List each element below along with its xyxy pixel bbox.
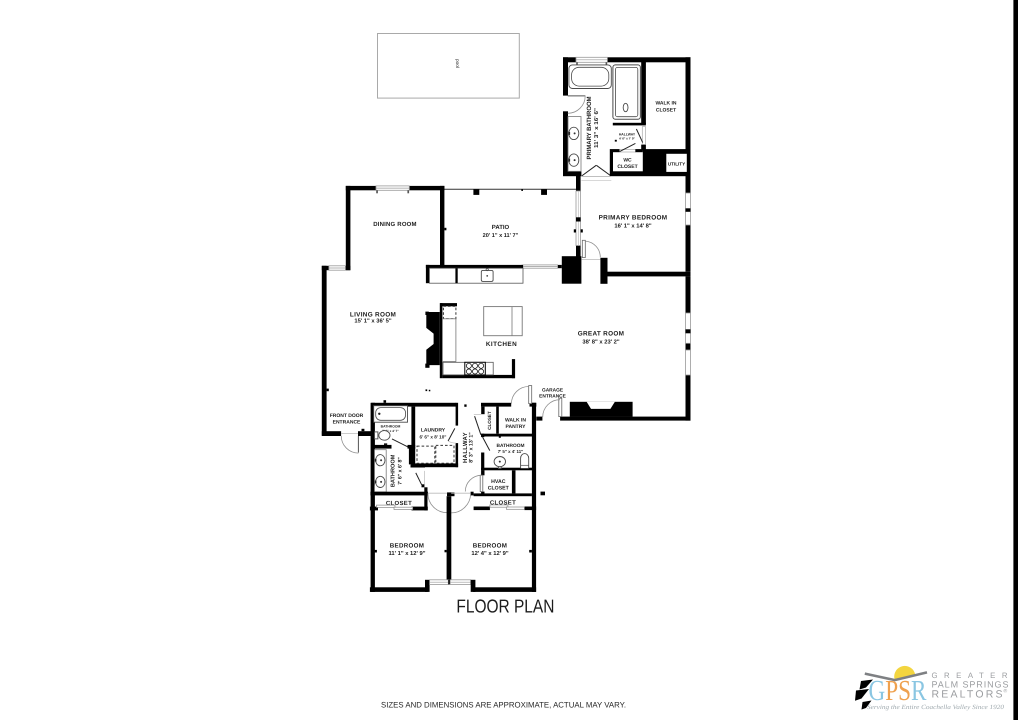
svg-text:UTILITY: UTILITY (668, 161, 685, 166)
svg-text:8' 3" x 13' 1": 8' 3" x 13' 1" (468, 432, 474, 463)
svg-text:GARAGE: GARAGE (542, 387, 564, 393)
svg-text:FRONT DOOR: FRONT DOOR (330, 413, 364, 419)
svg-text:12' 4" x 12' 9": 12' 4" x 12' 9" (471, 550, 509, 557)
svg-text:PANTRY: PANTRY (506, 424, 527, 430)
svg-text:pool: pool (454, 59, 460, 68)
svg-text:LAUNDRY: LAUNDRY (421, 428, 446, 434)
svg-text:CLOSET: CLOSET (656, 107, 676, 113)
svg-text:®: ® (1004, 689, 1008, 695)
svg-text:CLOSET: CLOSET (487, 411, 492, 430)
svg-text:4' 6" x 7' 9": 4' 6" x 7' 9" (619, 137, 636, 141)
svg-text:6' 6" x 8' 10": 6' 6" x 8' 10" (420, 434, 447, 439)
svg-text:PRIMARY BEDROOM: PRIMARY BEDROOM (599, 215, 668, 222)
svg-text:LIVING ROOM: LIVING ROOM (350, 311, 396, 318)
svg-text:KITCHEN: KITCHEN (486, 341, 517, 348)
svg-text:ENTRANCE: ENTRANCE (539, 394, 566, 400)
svg-text:REALTORS: REALTORS (932, 689, 1003, 701)
svg-text:11' 3" x 16' 6": 11' 3" x 16' 6" (594, 108, 600, 148)
svg-text:DINING ROOM: DINING ROOM (373, 221, 417, 228)
svg-text:BEDROOM: BEDROOM (473, 543, 507, 550)
svg-text:BATHROOM: BATHROOM (497, 443, 525, 449)
svg-text:BATHROOM: BATHROOM (391, 454, 397, 487)
svg-text:HVAC: HVAC (491, 479, 506, 485)
svg-text:11' 1" x 12' 9": 11' 1" x 12' 9" (389, 550, 426, 557)
svg-text:WALK IN: WALK IN (655, 101, 676, 107)
svg-text:ENTRANCE: ENTRANCE (333, 419, 361, 425)
svg-text:GREAT ROOM: GREAT ROOM (578, 331, 625, 338)
svg-text:WC: WC (623, 158, 632, 164)
svg-text:CLOSET: CLOSET (617, 164, 637, 170)
svg-text:38' 8" x 23' 2": 38' 8" x 23' 2" (582, 339, 620, 346)
svg-text:7' 5" x 4' 11": 7' 5" x 4' 11" (498, 449, 524, 454)
svg-text:20' 1" x 11' 7": 20' 1" x 11' 7" (483, 233, 519, 239)
svg-text:PATIO: PATIO (492, 224, 510, 231)
svg-text:FLOOR PLAN: FLOOR PLAN (456, 596, 554, 617)
svg-text:Serving the Entire Coachella V: Serving the Entire Coachella Valley Sinc… (867, 704, 1005, 711)
svg-text:CLOSET: CLOSET (488, 486, 510, 492)
svg-text:BEDROOM: BEDROOM (390, 543, 424, 550)
svg-text:7' 6" x 6' 8": 7' 6" x 6' 8" (398, 457, 404, 485)
svg-text:15' 1" x 36' 5": 15' 1" x 36' 5" (354, 318, 392, 325)
svg-text:SIZES AND DIMENSIONS ARE APPRO: SIZES AND DIMENSIONS ARE APPROXIMATE, AC… (381, 700, 626, 709)
svg-text:16' 1" x 14' 8": 16' 1" x 14' 8" (614, 222, 652, 229)
svg-text:PRIMARY BATHROOM: PRIMARY BATHROOM (586, 97, 593, 160)
svg-text:WALK IN: WALK IN (505, 418, 526, 424)
svg-text:GPSR: GPSR (869, 675, 928, 707)
